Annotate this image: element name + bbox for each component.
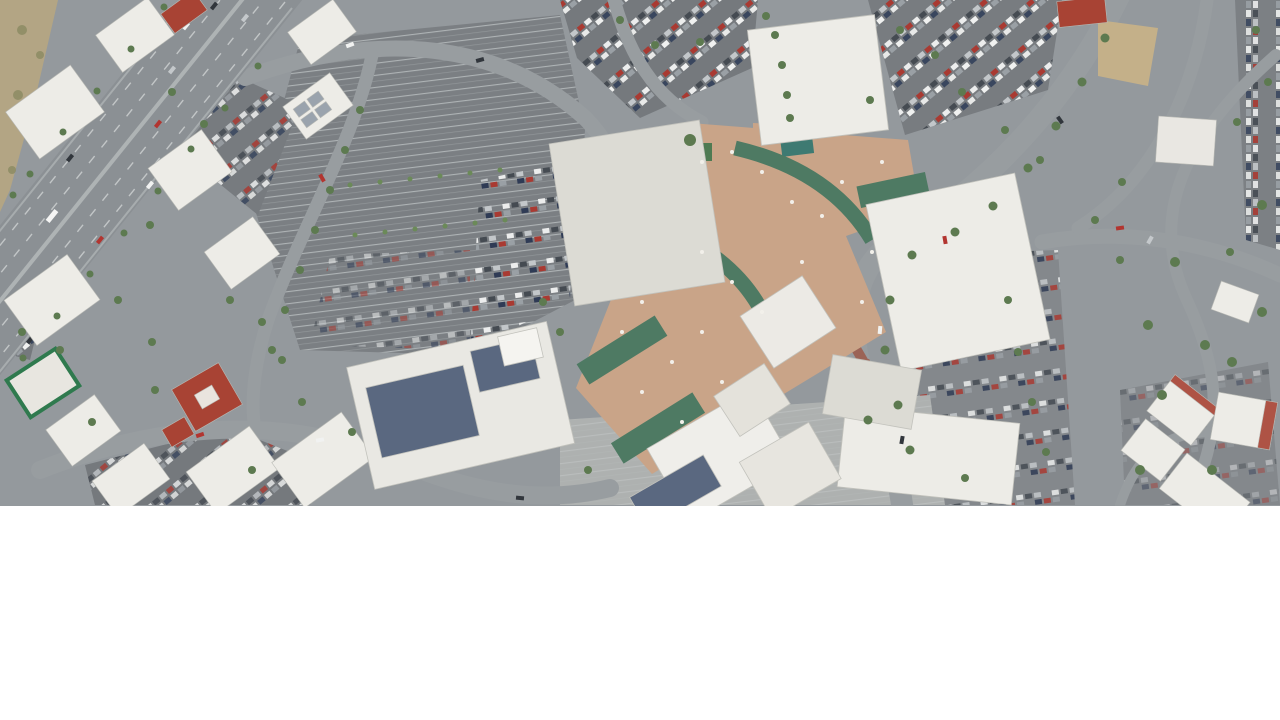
building <box>1155 116 1216 166</box>
dirt-lot <box>1098 20 1158 86</box>
building-red-roof <box>1057 0 1107 27</box>
anchor-nw <box>549 120 725 306</box>
page <box>0 0 1280 720</box>
anchor-top <box>747 15 888 146</box>
satellite-image <box>0 0 1280 506</box>
building <box>1210 392 1277 450</box>
blank-area <box>0 506 1280 720</box>
